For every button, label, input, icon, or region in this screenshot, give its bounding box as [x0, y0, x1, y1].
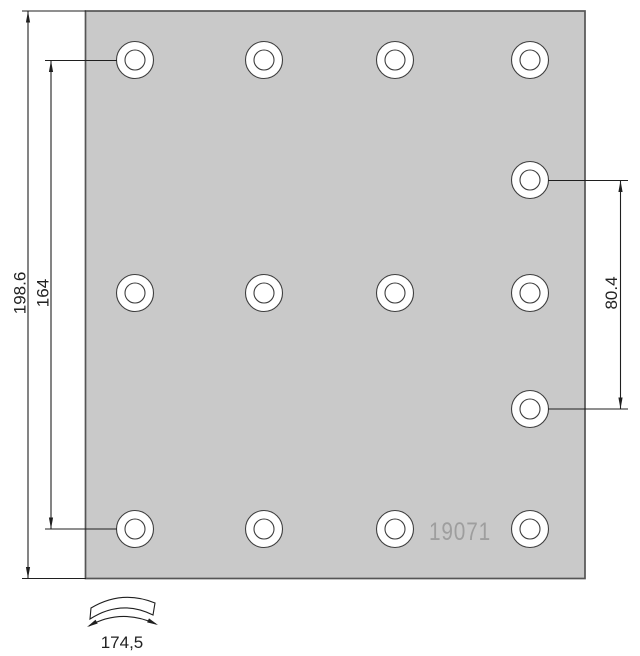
arrowhead-up-icon	[618, 181, 622, 193]
rivet-hole	[512, 275, 549, 312]
rivet-hole	[246, 511, 283, 548]
rivet-hole	[512, 42, 549, 79]
part-number-label: 19071	[429, 518, 491, 546]
rivet-hole	[512, 511, 549, 548]
arc-dimension-curve	[89, 616, 156, 626]
arrowhead-up-icon	[49, 61, 53, 73]
drawing-canvas: 19071 198.6 164 80.4 174,5	[0, 0, 640, 656]
arc-width-label: 174,5	[101, 633, 144, 652]
arrowhead-down-icon	[26, 567, 30, 579]
rivet-hole	[377, 275, 414, 312]
rivet-hole	[246, 275, 283, 312]
brake-lining-plate	[86, 11, 586, 579]
rivet-hole	[117, 42, 154, 79]
rivet-span-height-label: 164	[34, 279, 53, 307]
arrowhead-down-icon	[618, 398, 622, 410]
rivet-hole	[512, 162, 549, 199]
technical-drawing: 19071 198.6 164 80.4 174,5	[0, 0, 640, 656]
rivet-hole	[117, 511, 154, 548]
curved-lining-symbol	[90, 597, 155, 619]
rivet-hole	[377, 511, 414, 548]
arrowhead-left-icon	[87, 620, 98, 627]
rivet-hole	[377, 42, 414, 79]
arrowhead-right-icon	[147, 618, 158, 625]
overall-height-label: 198.6	[11, 272, 30, 315]
rivet-hole	[246, 42, 283, 79]
rivet-hole	[512, 391, 549, 428]
arrowhead-up-icon	[26, 11, 30, 23]
right-rivet-spacing-label: 80.4	[602, 276, 621, 309]
arrowhead-down-icon	[49, 518, 53, 530]
rivet-hole	[117, 275, 154, 312]
